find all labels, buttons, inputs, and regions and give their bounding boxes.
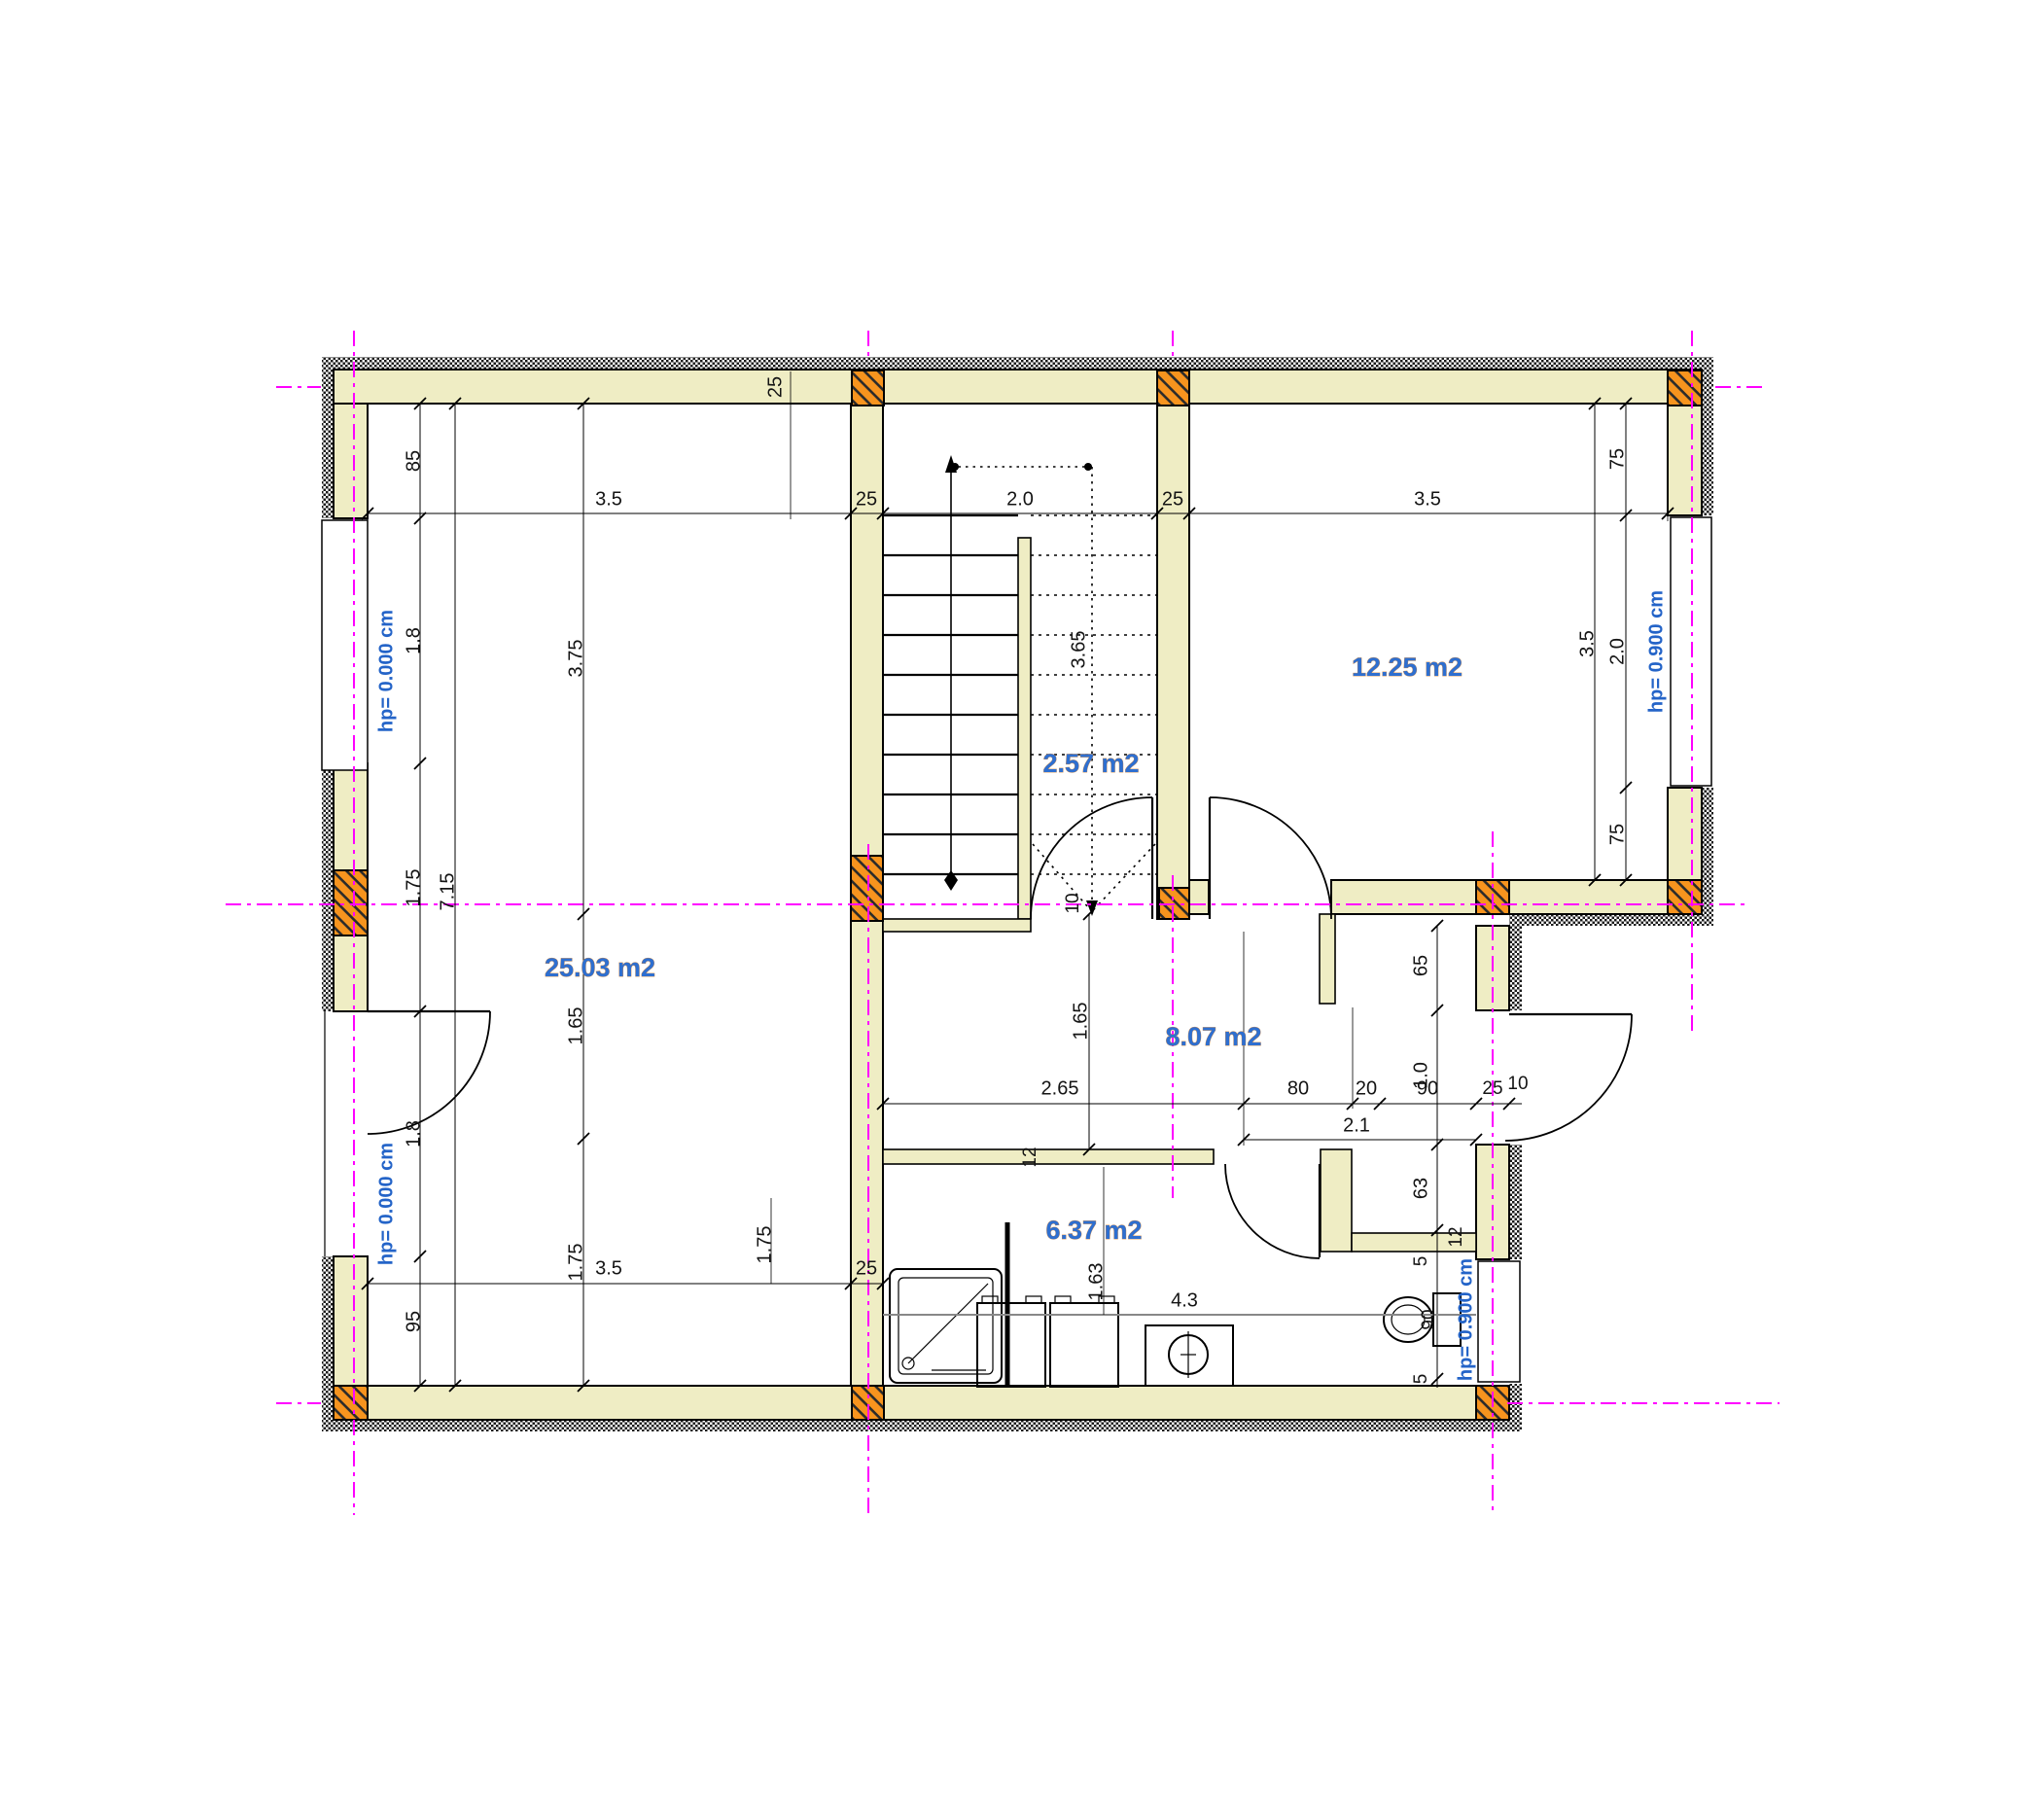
dim-right-5a: 5 [1411, 1256, 1431, 1267]
wall-stair-spine [1018, 538, 1031, 919]
dim-top-left-width: 3.5 [595, 488, 622, 510]
window-left-1 [322, 520, 368, 770]
wall-hall-stub [1320, 914, 1335, 1004]
dim-left-window18: 1.8 [403, 627, 424, 654]
dim-bath-163: 1.63 [1085, 1263, 1107, 1301]
dim-hall-total: 2.1 [1343, 1114, 1370, 1136]
wall-left-seg1 [334, 404, 368, 518]
floor-plan-canvas: 25.03 m2 2.57 m2 12.25 m2 8.07 m2 6.37 m… [0, 0, 2044, 1800]
dim-bath-43: 4.3 [1171, 1289, 1198, 1311]
cabinet-1-tab2 [1026, 1296, 1041, 1303]
walkline-dot-right [1084, 463, 1092, 471]
dim-top-wall-thickness: 25 [764, 376, 786, 398]
dim-inner-175: 1.75 [565, 1244, 586, 1282]
doors [368, 797, 1632, 1258]
dim-inner-375: 3.75 [565, 640, 586, 678]
dim-wall-10: 10 [1063, 893, 1083, 913]
door-bath-arc [1225, 1164, 1320, 1258]
shower-diagonal [908, 1284, 988, 1363]
level-label-window-left: hp= 0.000 cm [375, 610, 397, 732]
wall-bath-top [883, 1149, 1214, 1164]
wall-top [334, 370, 1702, 404]
dim-toilet-90: 90 [1419, 1309, 1439, 1329]
room-label-living: 25.03 m2 [545, 953, 655, 982]
dim-bedroom-win-75b: 75 [1606, 824, 1628, 845]
cabinet-2-tab [1055, 1296, 1071, 1303]
dim-top-stair-width: 2.0 [1006, 488, 1034, 510]
level-label-door-left: hp= 0.000 cm [375, 1143, 397, 1265]
dim-jog-12: 12 [1446, 1226, 1466, 1247]
dim-left-door18: 1.8 [403, 1120, 424, 1147]
stair-run-arrow [1086, 900, 1098, 916]
wall-left-seg3 [334, 1256, 368, 1386]
dim-right-65: 65 [1410, 955, 1431, 976]
floor-plan-drawing: 25.03 m2 2.57 m2 12.25 m2 8.07 m2 6.37 m… [0, 0, 2044, 1800]
door-bedroom-arc [1210, 797, 1331, 919]
room-label-staircase: 2.57 m2 [1042, 749, 1139, 778]
dim-hall-25: 25 [1482, 1078, 1502, 1099]
wall-stair-bottom [883, 919, 1031, 932]
dim-wall-12: 12 [1020, 1147, 1040, 1167]
door-living-arc [368, 1011, 490, 1134]
dim-left-175: 1.75 [403, 869, 424, 907]
dim-top-right-width: 3.5 [1414, 488, 1441, 510]
wall-bedroom-bottom [1331, 880, 1476, 914]
dim-inner-165: 1.65 [565, 1007, 586, 1045]
dim-bedroom-win-20: 2.0 [1606, 638, 1628, 665]
dim-hall-80: 80 [1287, 1077, 1309, 1099]
wall-bottom [334, 1386, 1509, 1420]
wall-jog-vertical [1321, 1149, 1352, 1252]
dim-hall-165: 1.65 [1070, 1003, 1091, 1041]
walkline-dot-left [951, 463, 959, 471]
dim-right-63: 63 [1410, 1178, 1431, 1199]
dim-right-5b: 5 [1411, 1374, 1431, 1385]
stair-direction-v-right [1096, 844, 1155, 907]
dim-hall-20: 20 [1356, 1077, 1377, 1099]
dim-stair-run: 3.65 [1068, 631, 1089, 669]
dim-right-10m: 1.0 [1410, 1062, 1431, 1089]
dim-bedroom-win-75a: 75 [1606, 448, 1628, 470]
window-right-lower [1478, 1261, 1520, 1382]
room-label-hall: 8.07 m2 [1165, 1022, 1261, 1051]
stair-treads-dotted [1031, 515, 1157, 874]
dim-bedroom-height: 3.5 [1576, 630, 1598, 657]
room-label-bedroom: 12.25 m2 [1352, 653, 1463, 682]
cabinet-1-tab [982, 1296, 998, 1303]
dim-left-85: 85 [403, 450, 424, 472]
dim-bottom-175: 1.75 [754, 1226, 775, 1264]
wall-bedroom-stub-left [1189, 880, 1209, 914]
dim-top-wall25-left: 25 [856, 488, 877, 510]
dim-left-95: 95 [403, 1311, 424, 1332]
dim-bottom-35: 3.5 [595, 1257, 622, 1279]
dim-bottom-25: 25 [856, 1257, 877, 1279]
level-label-window-right-upper: hp= 0.900 cm [1645, 590, 1667, 713]
dim-hall-10: 10 [1507, 1074, 1528, 1094]
dim-left-total: 7.15 [437, 873, 458, 911]
dim-top-wall25-right: 25 [1162, 488, 1183, 510]
dim-hall-265: 2.65 [1041, 1077, 1079, 1099]
wall-stair-right [1157, 404, 1189, 919]
level-label-window-right-lower: hp= 0.900 cm [1455, 1258, 1476, 1381]
room-label-bathroom: 6.37 m2 [1045, 1216, 1142, 1245]
